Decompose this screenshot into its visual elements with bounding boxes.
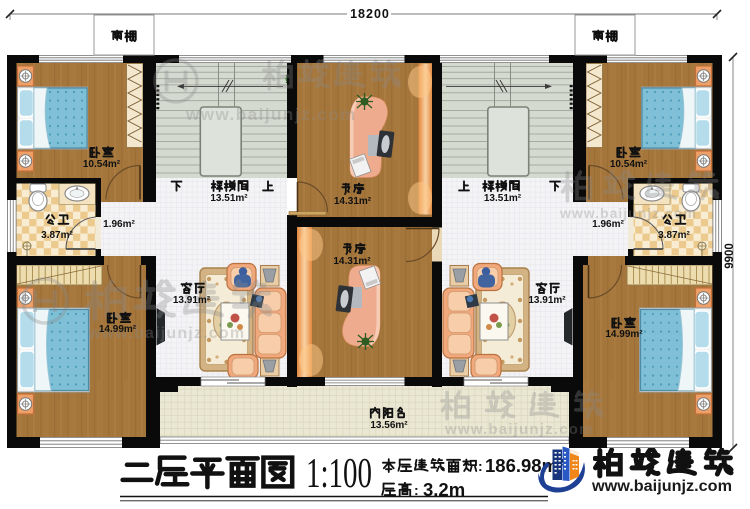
svg-text:www.baijunjz.com: www.baijunjz.com [559, 205, 697, 221]
svg-text:14.99m²: 14.99m² [99, 324, 137, 335]
svg-text:10.54m²: 10.54m² [610, 159, 648, 170]
svg-text:www.baijunjz.com: www.baijunjz.com [185, 105, 357, 124]
svg-text:13.56m²: 13.56m² [370, 420, 408, 431]
svg-text:9900: 9900 [724, 243, 736, 269]
svg-text:14.99m²: 14.99m² [605, 329, 643, 340]
svg-text:10.54m²: 10.54m² [83, 159, 121, 170]
svg-text:3.2m: 3.2m [423, 479, 465, 500]
svg-text:186.98m²: 186.98m² [485, 455, 564, 476]
svg-text:3.87m²: 3.87m² [41, 230, 73, 241]
svg-text:13.51m²: 13.51m² [210, 193, 248, 204]
svg-text::: : [414, 482, 419, 498]
svg-text:13.51m²: 13.51m² [484, 193, 522, 204]
svg-text:18200: 18200 [350, 7, 390, 21]
svg-text:1.96m²: 1.96m² [103, 219, 135, 230]
svg-text:14.31m²: 14.31m² [334, 196, 372, 207]
svg-text:www.baijunjz.com: www.baijunjz.com [591, 478, 732, 495]
svg-text:13.91m²: 13.91m² [173, 295, 211, 306]
svg-text:3.87m²: 3.87m² [658, 230, 690, 241]
svg-text:www.baijunjz.com: www.baijunjz.com [444, 421, 594, 438]
svg-text:1:100: 1:100 [306, 451, 372, 497]
svg-text:14.31m²: 14.31m² [333, 256, 371, 267]
svg-text:1.96m²: 1.96m² [592, 219, 624, 230]
svg-text:13.91m²: 13.91m² [528, 295, 566, 306]
svg-text::: : [478, 458, 483, 474]
